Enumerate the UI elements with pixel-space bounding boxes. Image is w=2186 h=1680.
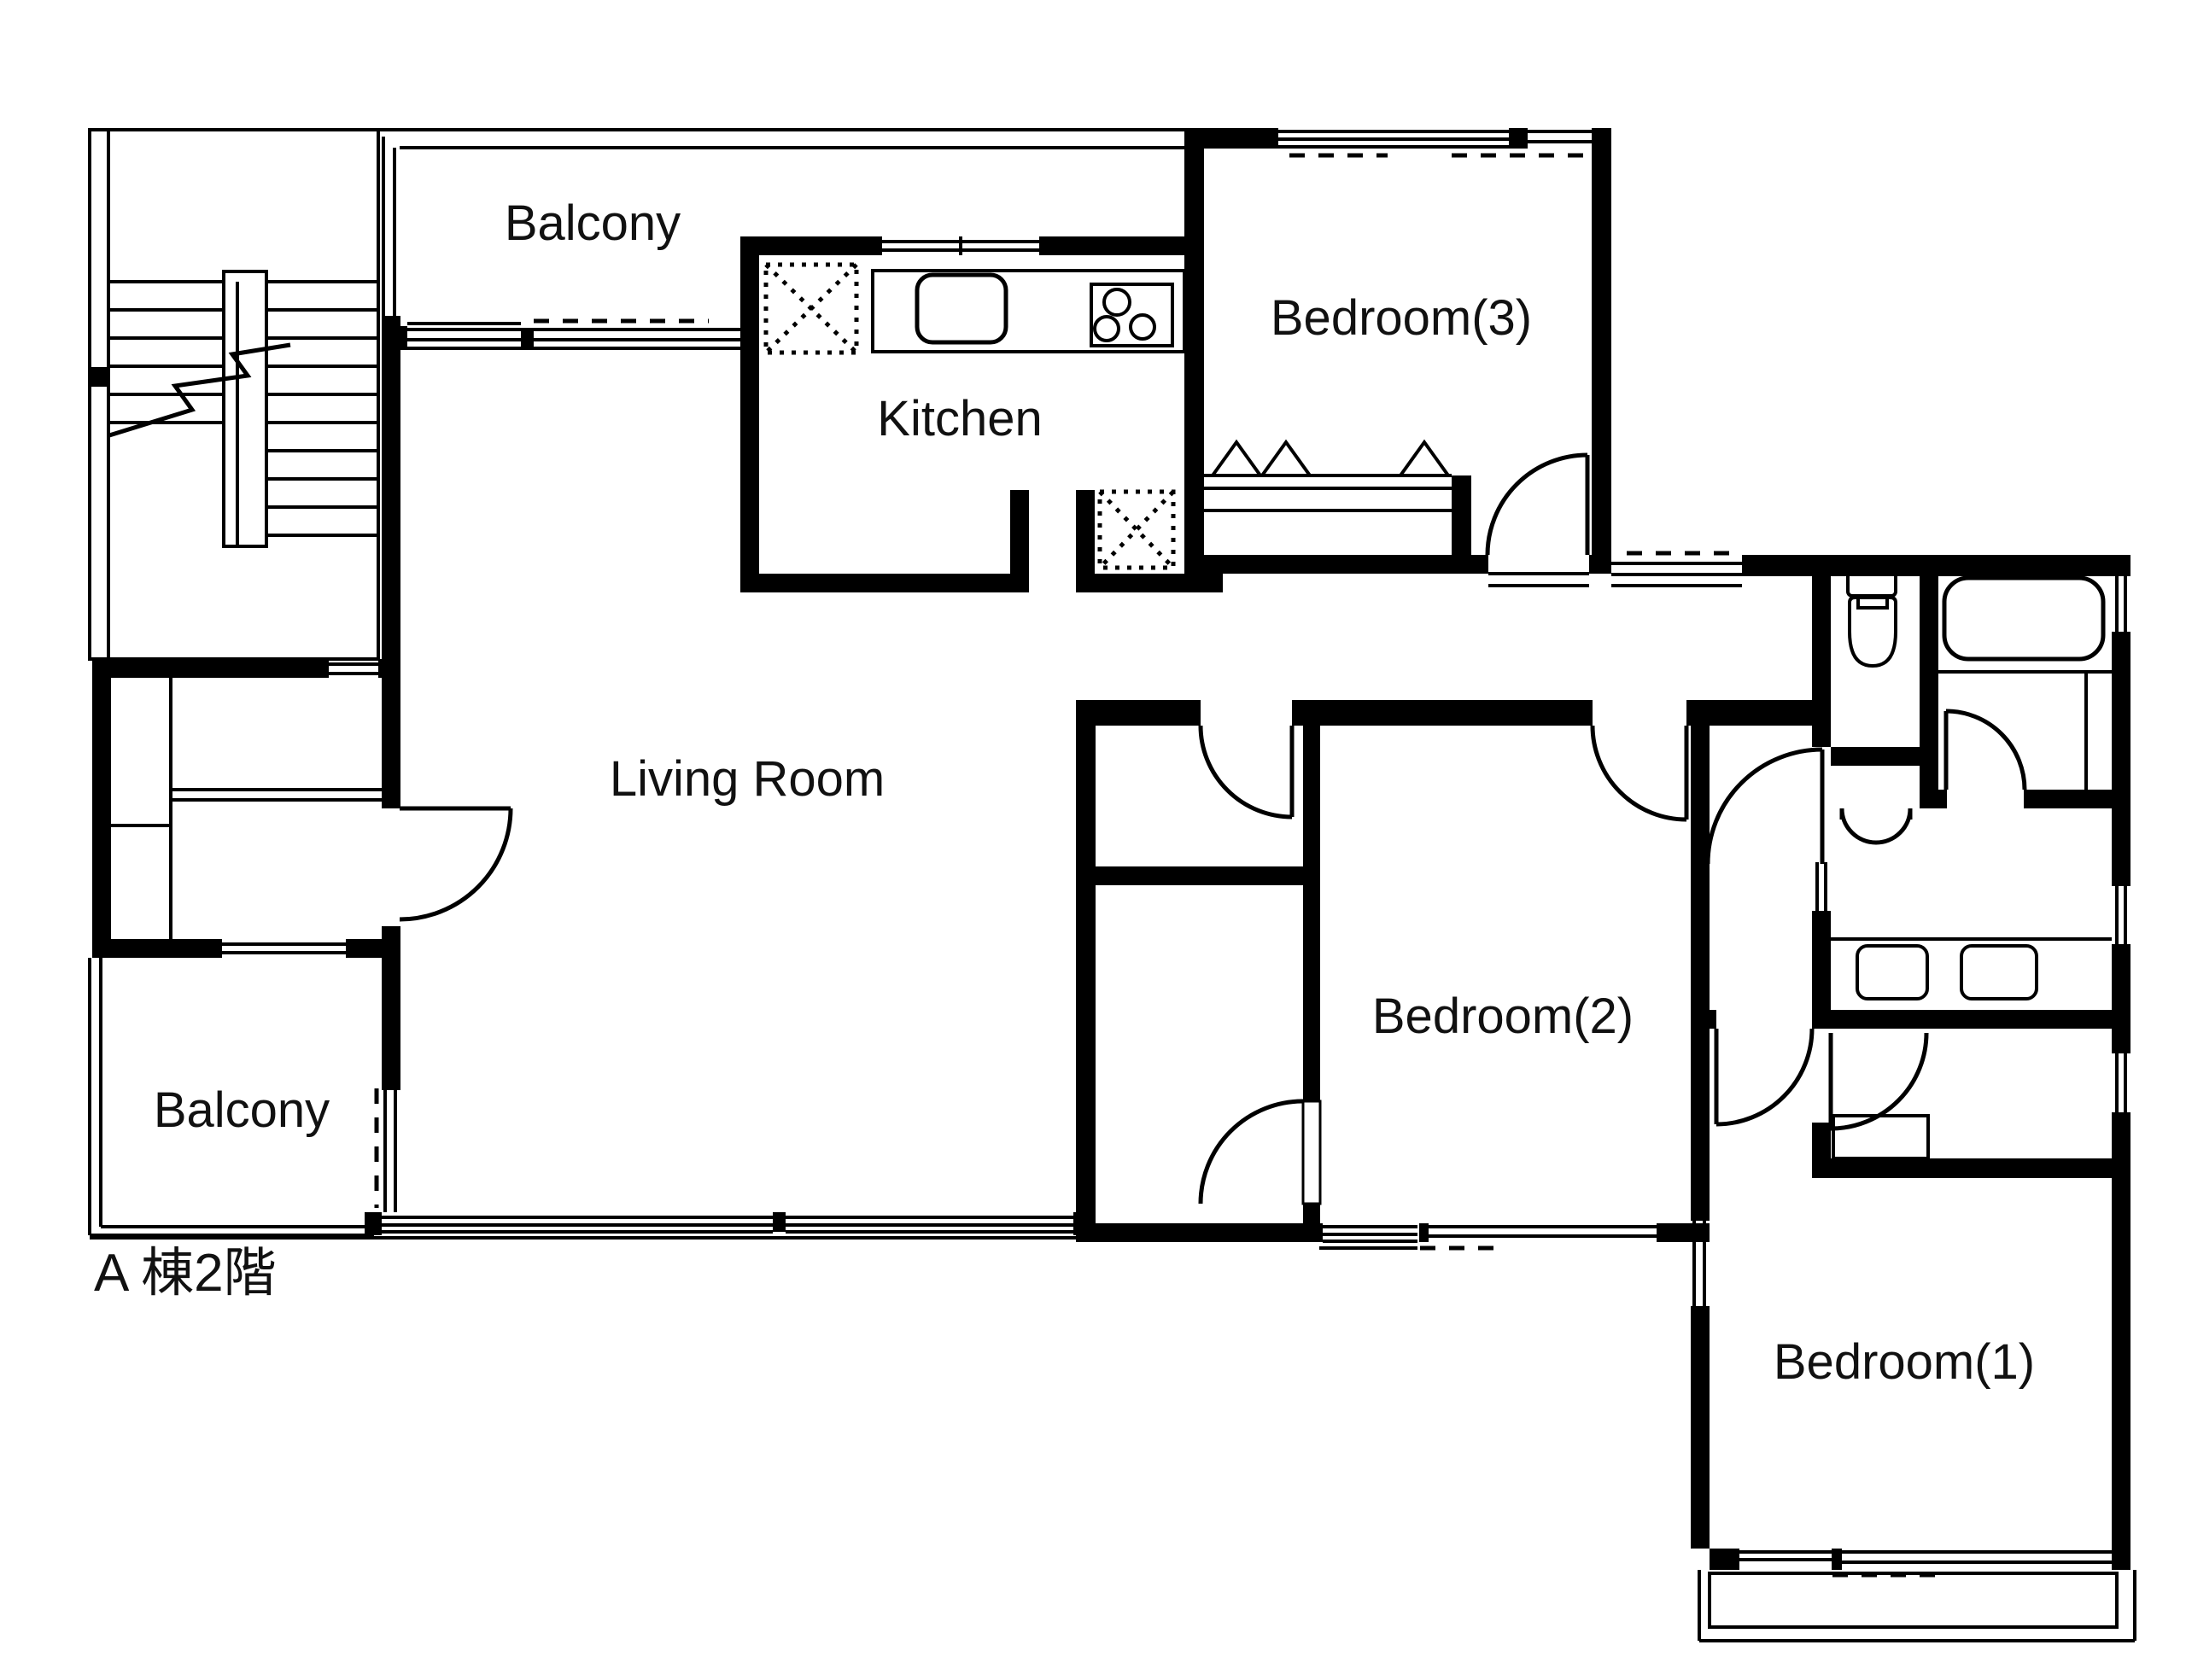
floor-plan-canvas: Balcony Kitchen Bedroom(3) Living Room B… (0, 0, 2186, 1680)
door-small-room-bottom (1201, 1101, 1320, 1204)
stairwell (90, 130, 378, 659)
refrigerator-space (766, 265, 856, 353)
door-bifold-laundry (1842, 808, 1910, 843)
stair-treads-left (108, 282, 224, 423)
door-bedroom2 (1593, 726, 1686, 820)
floor-plan-page: Balcony Kitchen Bedroom(3) Living Room B… (0, 0, 2186, 1680)
door-storage-living (400, 808, 511, 919)
label-balcony-top: Balcony (505, 195, 681, 251)
label-bedroom-3: Bedroom(3) (1271, 290, 1532, 346)
door-bedroom3 (1488, 455, 1587, 555)
door-bedroom1 (1716, 1029, 1812, 1124)
closet-bedroom1 (1833, 1116, 1928, 1158)
stair-treads-right (266, 282, 378, 535)
label-bedroom-2: Bedroom(2) (1372, 989, 1634, 1044)
label-kitchen: Kitchen (877, 391, 1042, 446)
door-small-room-top (1201, 726, 1292, 817)
balcony-bedroom1 (1699, 1570, 2135, 1641)
door-washroom (1946, 711, 2025, 790)
label-living-room: Living Room (610, 751, 885, 807)
label-bedroom-1: Bedroom(1) (1774, 1334, 2035, 1390)
label-floor: A 棟2階 (94, 1244, 277, 1303)
balcony-top-area (383, 321, 740, 350)
door-corridor (1708, 750, 1822, 864)
stove-3-burner (1091, 284, 1172, 346)
toilet (1848, 570, 1896, 666)
entry-storage-block (92, 659, 400, 958)
kitchen-sink (917, 275, 1006, 342)
washer-units (1857, 946, 2037, 999)
laundry-space (1100, 492, 1173, 568)
closet-bedroom3 (1204, 442, 1452, 510)
bathtub (1944, 578, 2103, 659)
label-balcony-bottom: Balcony (154, 1082, 330, 1138)
